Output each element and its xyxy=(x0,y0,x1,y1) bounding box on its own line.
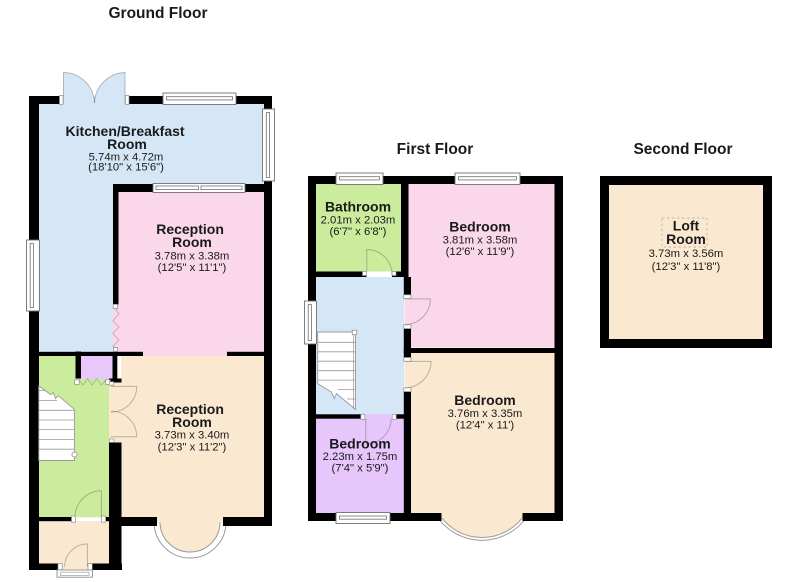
svg-text:3.81m x 3.58m: 3.81m x 3.58m xyxy=(443,235,518,247)
svg-text:3.76m x 3.35m: 3.76m x 3.35m xyxy=(448,408,523,420)
svg-text:2.23m x 1.75m: 2.23m x 1.75m xyxy=(323,451,398,463)
svg-text:Ground Floor: Ground Floor xyxy=(108,5,207,22)
svg-text:(18'10" x 15'6"): (18'10" x 15'6") xyxy=(88,162,164,174)
svg-text:First Floor: First Floor xyxy=(397,141,474,158)
svg-text:(12'4" x 11'): (12'4" x 11') xyxy=(456,420,515,432)
svg-text:(12'3" x 11'2"): (12'3" x 11'2") xyxy=(158,442,227,454)
svg-text:Bathroom: Bathroom xyxy=(325,199,391,215)
svg-text:(12'6" x 11'9"): (12'6" x 11'9") xyxy=(446,246,515,258)
svg-text:Second Floor: Second Floor xyxy=(633,141,732,158)
svg-text:2.01m x 2.03m: 2.01m x 2.03m xyxy=(321,215,396,227)
svg-text:Bedroom: Bedroom xyxy=(329,436,390,452)
svg-text:Bedroom: Bedroom xyxy=(449,219,510,235)
svg-text:Bedroom: Bedroom xyxy=(454,392,515,408)
svg-text:3.73m x 3.40m: 3.73m x 3.40m xyxy=(155,430,230,442)
svg-text:(6'7" x 6'8"): (6'7" x 6'8") xyxy=(330,226,387,238)
svg-text:(7'4" x 5'9"): (7'4" x 5'9") xyxy=(332,463,389,475)
svg-text:(12'3" x 11'8"): (12'3" x 11'8") xyxy=(652,261,721,273)
svg-text:(12'5" x 11'1"): (12'5" x 11'1") xyxy=(158,262,227,274)
svg-text:Room: Room xyxy=(666,231,706,247)
svg-text:3.73m x 3.56m: 3.73m x 3.56m xyxy=(649,248,724,260)
svg-text:3.78m x 3.38m: 3.78m x 3.38m xyxy=(155,251,230,263)
